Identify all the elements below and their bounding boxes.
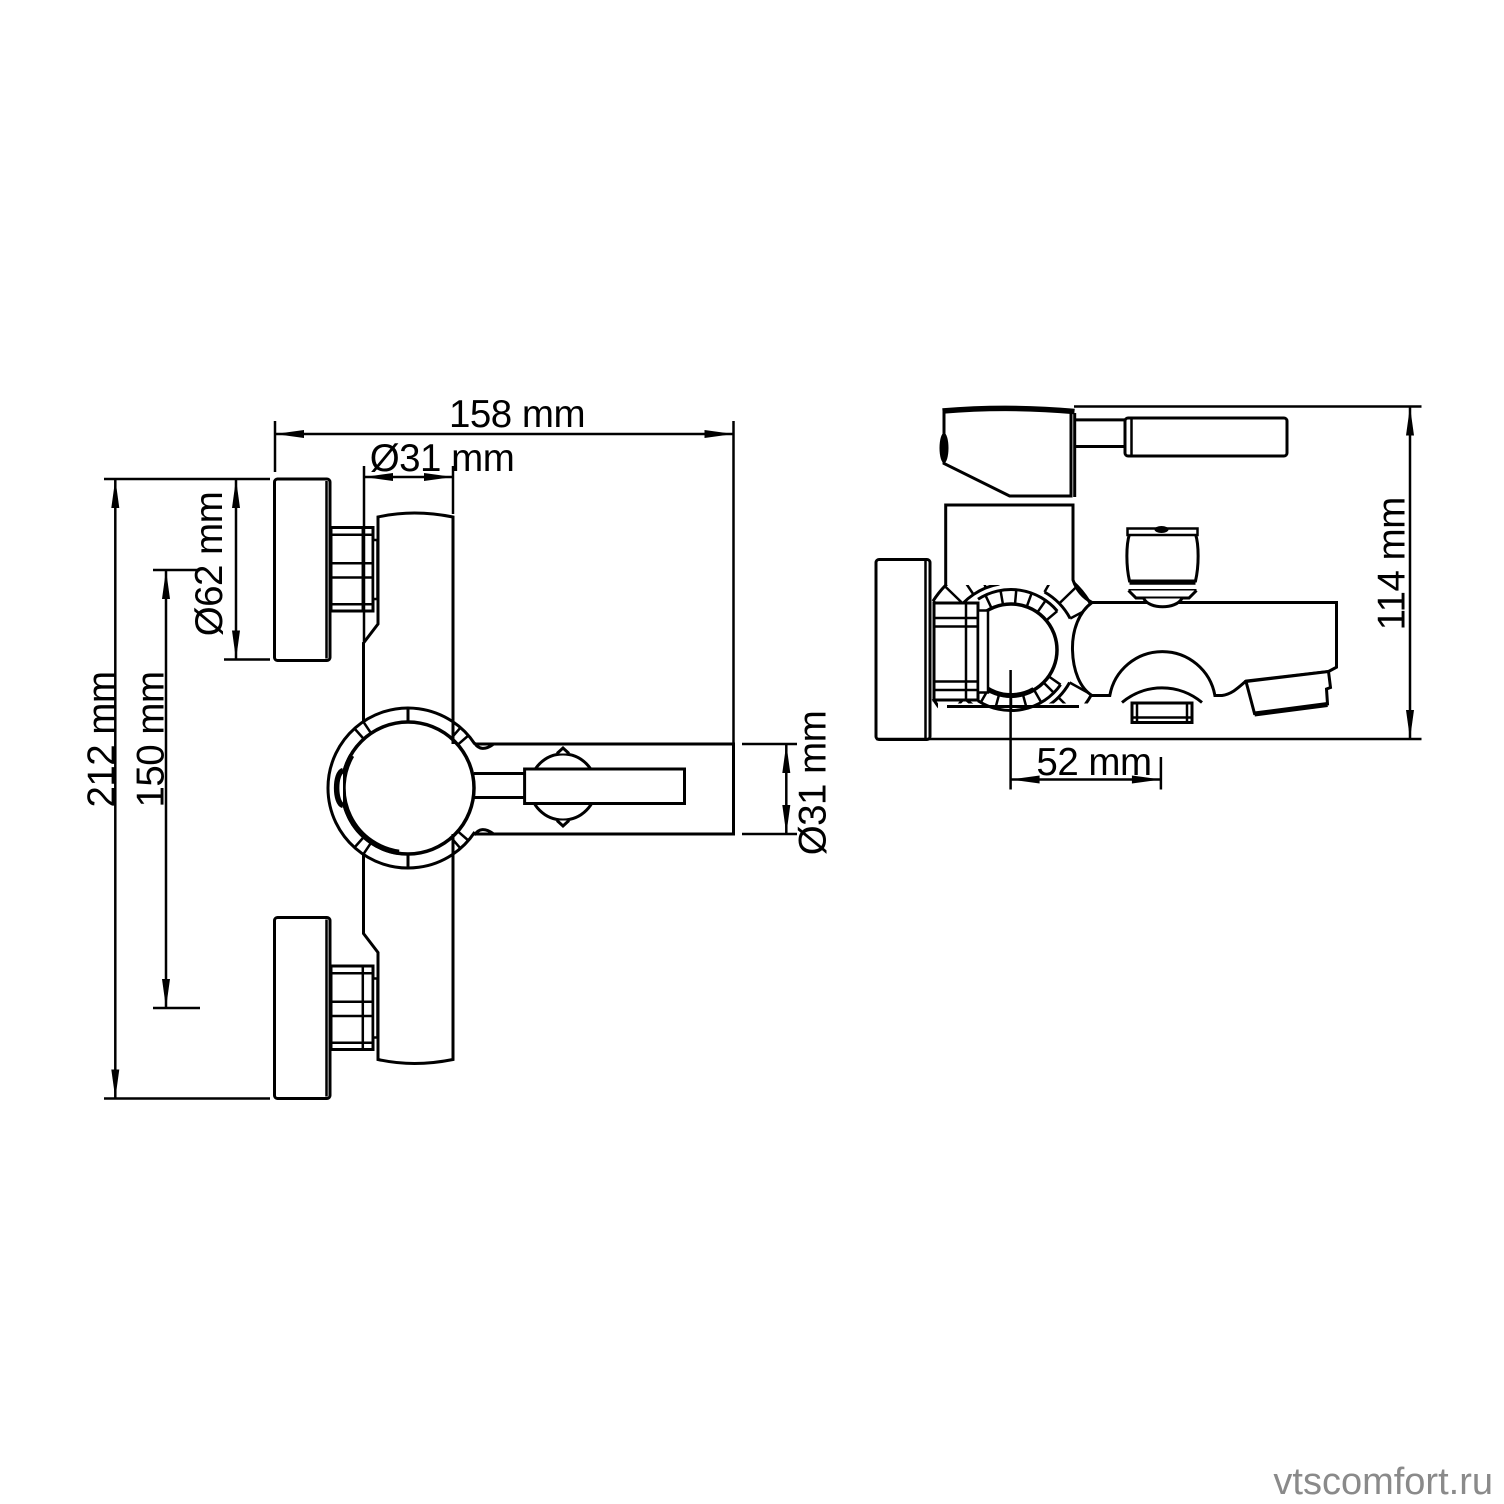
svg-text:212 mm: 212 mm: [81, 671, 124, 807]
svg-text:150 mm: 150 mm: [130, 671, 173, 807]
svg-text:Ø62 mm: Ø62 mm: [188, 492, 231, 637]
svg-text:158 mm: 158 mm: [449, 393, 585, 436]
svg-text:114 mm: 114 mm: [1371, 497, 1414, 630]
svg-text:Ø31 mm: Ø31 mm: [370, 437, 515, 480]
svg-text:52 mm: 52 mm: [1036, 741, 1151, 784]
svg-text:vtscomfort.ru: vtscomfort.ru: [1273, 1461, 1493, 1503]
svg-text:Ø31 mm: Ø31 mm: [792, 711, 835, 856]
